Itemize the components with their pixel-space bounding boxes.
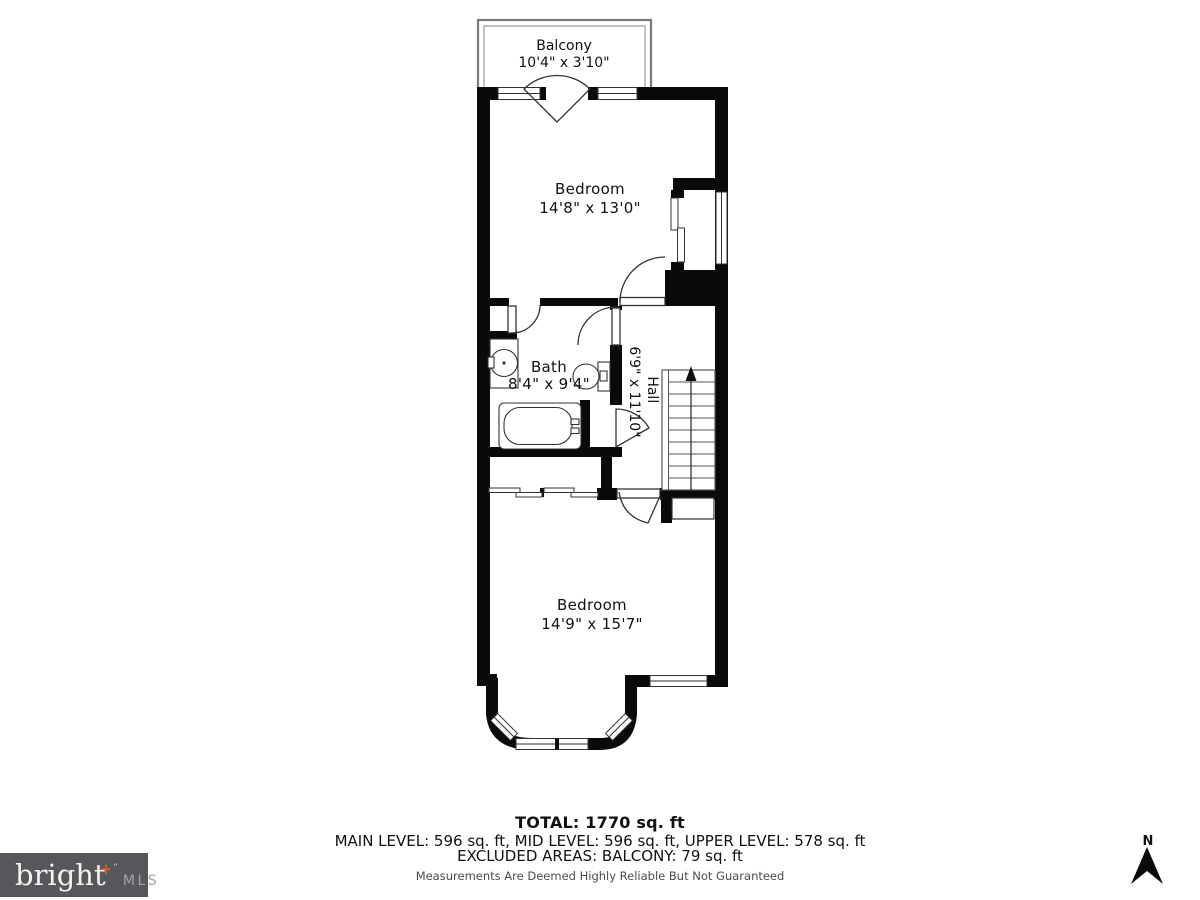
door-leaf — [612, 308, 620, 345]
bath-label: Bath — [531, 358, 567, 376]
logo-brand-text: bright — [15, 853, 106, 897]
hall-label-group: Hall 6'9" x 11'10" — [626, 346, 660, 437]
door-arc-upper-bedroom — [620, 257, 665, 302]
closet-sliding-doors-upper — [671, 198, 685, 262]
wall-tick — [483, 488, 489, 497]
bathtub — [499, 403, 581, 449]
wall-segment — [540, 298, 618, 306]
footer-excluded: EXCLUDED AREAS: BALCONY: 79 sq. ft — [0, 847, 1200, 865]
wall-closet-top — [673, 178, 715, 190]
wall-understair-stub — [661, 500, 672, 523]
wall-segment — [671, 190, 684, 198]
wall-segment — [637, 87, 728, 100]
balcony-label: Balcony — [536, 38, 592, 54]
wall-segment — [540, 87, 546, 100]
wall-left-outer — [477, 87, 490, 686]
floor-plan-page: Balcony 10'4" x 3'10" Bedroom 14'8" x 13… — [0, 0, 1200, 900]
hall-label: Hall — [644, 376, 660, 403]
upper-bedroom-dims: 14'8" x 13'0" — [539, 199, 641, 217]
bath-fixtures — [488, 339, 610, 449]
footer-disclaimer: Measurements Are Deemed Highly Reliable … — [0, 869, 1200, 883]
lower-bedroom-dims: 14'9" x 15'7" — [541, 615, 643, 633]
wall-segment — [601, 457, 612, 490]
logo-suffix-text: MLS — [123, 873, 159, 889]
logo-plus-icon: + — [100, 860, 113, 878]
window-bedroom-closet-right — [716, 192, 727, 264]
balcony-dims: 10'4" x 3'10" — [518, 55, 609, 71]
window-top-right — [598, 88, 637, 100]
balcony-railing — [478, 20, 651, 88]
wall-segment — [625, 675, 651, 687]
brightmls-logo: bright + ” MLS — [0, 853, 148, 897]
hall-dims: 6'9" x 11'10" — [626, 346, 642, 437]
wall-segment — [597, 488, 617, 500]
floor-plan-svg: Balcony 10'4" x 3'10" Bedroom 14'8" x 13… — [0, 0, 1200, 900]
door-leaf — [508, 306, 516, 333]
wall-segment — [706, 675, 728, 687]
upper-bedroom-label: Bedroom — [555, 180, 625, 198]
door-leaf — [617, 489, 660, 498]
lower-bedroom-label: Bedroom — [557, 596, 627, 614]
footer-total: TOTAL: 1770 sq. ft — [0, 813, 1200, 832]
bath-dims: 8'4" x 9'4" — [508, 375, 590, 393]
wall-right-outer — [715, 87, 728, 687]
window-lower-right — [650, 676, 707, 687]
wall-mass-closet-base — [665, 270, 715, 306]
door-arc-hall-bath — [578, 307, 616, 345]
logo-tm-mark: ” — [113, 863, 118, 873]
window-bay-bottom — [516, 739, 588, 750]
wall-segment — [671, 262, 684, 271]
door-arc-balcony — [524, 75, 590, 122]
wall-segment — [490, 298, 509, 306]
wall-segment — [610, 345, 622, 405]
understair-nook — [672, 498, 714, 519]
window-top-left — [498, 88, 540, 100]
door-leaf — [620, 298, 665, 306]
